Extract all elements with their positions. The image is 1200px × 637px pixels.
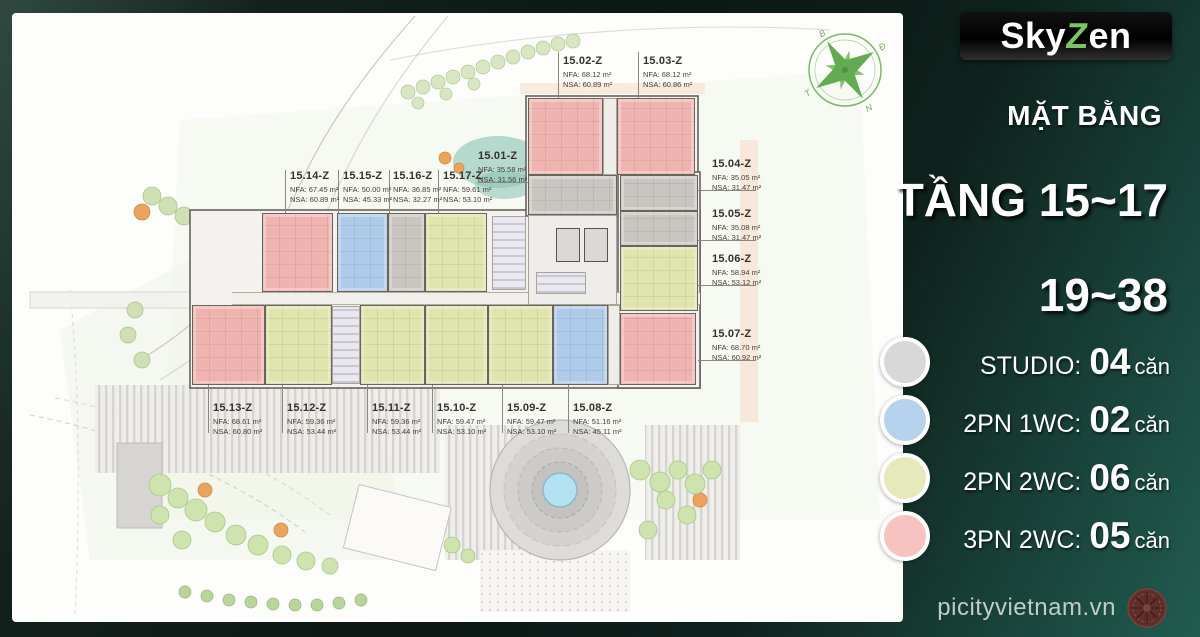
unit-nfa: NFA: 68.61 m² xyxy=(213,417,262,427)
unit-nfa: NFA: 35.08 m² xyxy=(712,223,761,233)
unit-label-15.12-Z: 15.12-ZNFA: 59.36 m²NSA: 53.44 m² xyxy=(287,402,336,436)
website-text: picityvietnam.vn xyxy=(937,594,1116,622)
unit-id: 15.08-Z xyxy=(573,402,622,414)
unit-nsa: NSA: 60.89 m² xyxy=(290,195,339,205)
footer: picityvietnam.vn xyxy=(937,587,1168,629)
elevator-1 xyxy=(556,228,580,262)
unit-id: 15.07-Z xyxy=(712,328,761,340)
unit-label-15.02-Z: 15.02-ZNFA: 68.12 m²NSA: 60.89 m² xyxy=(563,55,612,89)
unit-nsa: NSA: 53.44 m² xyxy=(287,427,336,437)
unit-id: 15.04-Z xyxy=(712,158,761,170)
unit-15.10-Z xyxy=(425,305,488,385)
legend-label: 3PN 2WC: xyxy=(963,526,1081,554)
legend-swatch-2pn2wc xyxy=(880,453,930,503)
logo-text-en: en xyxy=(1089,15,1132,57)
unit-15.08-Z xyxy=(553,305,608,385)
legend-count: 02 xyxy=(1089,399,1130,440)
unit-nfa: NFA: 59.36 m² xyxy=(287,417,336,427)
unit-id: 15.13-Z xyxy=(213,402,262,414)
unit-nfa: NFA: 67.45 m² xyxy=(290,185,339,195)
legend-unit-word: căn xyxy=(1135,528,1170,553)
stairwell xyxy=(332,306,360,384)
legend-count: 04 xyxy=(1089,341,1130,382)
legend-count: 05 xyxy=(1089,515,1130,556)
unit-id: 15.02-Z xyxy=(563,55,612,67)
unit-id: 15.17-Z xyxy=(443,170,492,182)
unit-label-15.11-Z: 15.11-ZNFA: 59.36 m²NSA: 53.44 m² xyxy=(372,402,421,436)
unit-15.03-Z xyxy=(617,98,695,175)
unit-nsa: NSA: 31.47 m² xyxy=(712,183,761,193)
logo-text-z: Z xyxy=(1064,15,1091,57)
legend-unit-word: căn xyxy=(1135,412,1170,437)
unit-15.14-Z xyxy=(262,213,333,292)
unit-nsa: NSA: 60.92 m² xyxy=(712,353,761,363)
unit-label-15.17-Z: 15.17-ZNFA: 59.61 m²NSA: 53.10 m² xyxy=(443,170,492,204)
unit-id: 15.09-Z xyxy=(507,402,556,414)
unit-id: 15.11-Z xyxy=(372,402,421,414)
unit-15.15-Z xyxy=(337,213,388,292)
unit-id: 15.10-Z xyxy=(437,402,486,414)
legend-item-2pn1wc: 2PN 1WC:02căn xyxy=(880,395,1170,445)
plan-subtitle: MẶT BẰNG xyxy=(1007,100,1162,132)
unit-id: 15.05-Z xyxy=(712,208,761,220)
unit-nfa: NFA: 68.70 m² xyxy=(712,343,761,353)
label-leader-line xyxy=(432,385,433,433)
skyzen-logo: SkyZen xyxy=(960,12,1172,60)
unit-15.01-Z xyxy=(528,175,617,215)
legend-label: STUDIO: xyxy=(980,352,1081,380)
elevator-2 xyxy=(584,228,608,262)
legend-item-studio: STUDIO:04căn xyxy=(880,337,1170,387)
unit-label-15.06-Z: 15.06-ZNFA: 58.94 m²NSA: 53.12 m² xyxy=(712,253,761,287)
unit-label-15.15-Z: 15.15-ZNFA: 50.00 m²NSA: 45.33 m² xyxy=(343,170,392,204)
unit-nsa: NSA: 53.10 m² xyxy=(507,427,556,437)
unit-15.06-Z xyxy=(620,246,698,311)
legend-swatch-2pn1wc xyxy=(880,395,930,445)
core-stairs xyxy=(536,272,586,294)
label-leader-line xyxy=(502,385,503,433)
label-leader-line xyxy=(282,385,283,433)
lobby-stairs xyxy=(492,216,526,290)
legend-label: 2PN 1WC: xyxy=(963,410,1081,438)
label-leader-line xyxy=(568,385,569,433)
unit-nfa: NFA: 59.36 m² xyxy=(372,417,421,427)
unit-label-15.16-Z: 15.16-ZNFA: 36.85 m²NSA: 32.27 m² xyxy=(393,170,442,204)
unit-nfa: NFA: 68.12 m² xyxy=(643,70,692,80)
unit-nsa: NSA: 32.27 m² xyxy=(393,195,442,205)
unit-nfa: NFA: 59.61 m² xyxy=(443,185,492,195)
side-lobby xyxy=(608,305,620,385)
legend-count: 06 xyxy=(1089,457,1130,498)
unit-15.09-Z xyxy=(488,305,553,385)
picity-seal-icon xyxy=(1126,587,1168,629)
unit-id: 15.16-Z xyxy=(393,170,442,182)
legend-unit-word: căn xyxy=(1135,354,1170,379)
unit-nfa: NFA: 59.47 m² xyxy=(437,417,486,427)
unit-label-15.03-Z: 15.03-ZNFA: 68.12 m²NSA: 60.86 m² xyxy=(643,55,692,89)
unit-nsa: NSA: 53.10 m² xyxy=(437,427,486,437)
legend-item-2pn2wc: 2PN 2WC:06căn xyxy=(880,453,1170,503)
unit-label-15.09-Z: 15.09-ZNFA: 59.47 m²NSA: 53.10 m² xyxy=(507,402,556,436)
unit-label-15.04-Z: 15.04-ZNFA: 35.05 m²NSA: 31.47 m² xyxy=(712,158,761,192)
unit-id: 15.15-Z xyxy=(343,170,392,182)
unit-nsa: NSA: 53.44 m² xyxy=(372,427,421,437)
logo-text-sky: Sky xyxy=(1000,15,1066,57)
unit-nsa: NSA: 45.11 m² xyxy=(573,427,622,437)
unit-nfa: NFA: 35.05 m² xyxy=(712,173,761,183)
unit-id: 15.06-Z xyxy=(712,253,761,265)
tower-connector xyxy=(603,98,617,175)
unit-id: 15.03-Z xyxy=(643,55,692,67)
unit-nsa: NSA: 60.89 m² xyxy=(563,80,612,90)
unit-id: 15.14-Z xyxy=(290,170,339,182)
legend-swatch-studio xyxy=(880,337,930,387)
unit-15.16-Z xyxy=(388,213,425,292)
unit-nfa: NFA: 36.85 m² xyxy=(393,185,442,195)
unit-nfa: NFA: 68.12 m² xyxy=(563,70,612,80)
legend-unit-word: căn xyxy=(1135,470,1170,495)
unit-nfa: NFA: 59.47 m² xyxy=(507,417,556,427)
unit-id: 15.12-Z xyxy=(287,402,336,414)
unit-label-15.14-Z: 15.14-ZNFA: 67.45 m²NSA: 60.89 m² xyxy=(290,170,339,204)
skyzen-floorplan-poster: { "logo": { "part1": "Sky", "part2": "Z"… xyxy=(0,0,1200,637)
label-leader-line xyxy=(638,52,639,98)
legend-item-3pn2wc: 3PN 2WC:05căn xyxy=(880,511,1170,561)
unit-nsa: NSA: 31.47 m² xyxy=(712,233,761,243)
legend-label: 2PN 2WC: xyxy=(963,468,1081,496)
unit-15.04-Z xyxy=(620,175,698,211)
label-leader-line xyxy=(285,170,286,213)
unit-id: 15.01-Z xyxy=(478,150,527,162)
unit-label-15.13-Z: 15.13-ZNFA: 68.61 m²NSA: 60.80 m² xyxy=(213,402,262,436)
legend-swatch-3pn2wc xyxy=(880,511,930,561)
unit-nsa: NSA: 60.80 m² xyxy=(213,427,262,437)
unit-15.17-Z xyxy=(425,213,487,292)
unit-nsa: NSA: 60.86 m² xyxy=(643,80,692,90)
label-leader-line xyxy=(558,52,559,98)
unit-label-15.05-Z: 15.05-ZNFA: 35.08 m²NSA: 31.47 m² xyxy=(712,208,761,242)
floors-title-line2: 19~38 xyxy=(1039,268,1168,322)
unit-nsa: NSA: 53.10 m² xyxy=(443,195,492,205)
unit-15.12-Z xyxy=(265,305,332,385)
unit-15.11-Z xyxy=(360,305,425,385)
unit-nfa: NFA: 51.16 m² xyxy=(573,417,622,427)
label-leader-line xyxy=(208,385,209,433)
unit-nsa: NSA: 45.33 m² xyxy=(343,195,392,205)
unit-15.07-Z xyxy=(620,313,696,385)
label-leader-line xyxy=(367,385,368,433)
unit-label-15.08-Z: 15.08-ZNFA: 51.16 m²NSA: 45.11 m² xyxy=(573,402,622,436)
unit-label-15.10-Z: 15.10-ZNFA: 59.47 m²NSA: 53.10 m² xyxy=(437,402,486,436)
unit-nfa: NFA: 50.00 m² xyxy=(343,185,392,195)
unit-15.13-Z xyxy=(192,305,265,385)
unit-15.02-Z xyxy=(528,98,603,175)
unit-15.05-Z xyxy=(620,211,698,246)
floors-title-line1: TẦNG 15~17 xyxy=(896,173,1168,227)
unit-nfa: NFA: 58.94 m² xyxy=(712,268,761,278)
unit-label-15.07-Z: 15.07-ZNFA: 68.70 m²NSA: 60.92 m² xyxy=(712,328,761,362)
unit-nsa: NSA: 53.12 m² xyxy=(712,278,761,288)
